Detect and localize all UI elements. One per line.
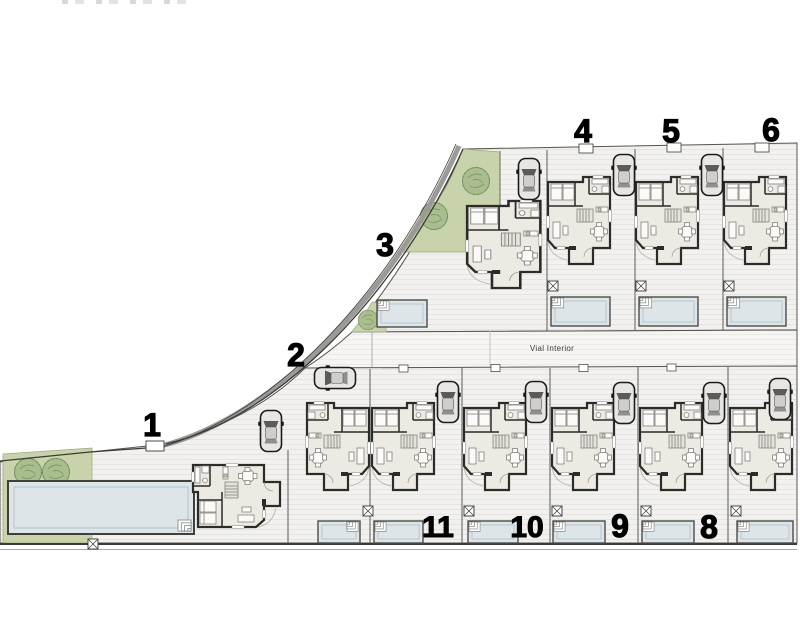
unit-number-label-2: 2 — [287, 337, 305, 373]
car-icon — [701, 383, 727, 424]
gate — [491, 365, 500, 372]
utility-box-icon — [552, 506, 562, 516]
car-icon — [258, 411, 284, 452]
utility-box-icon — [731, 506, 741, 516]
road-name-label: Vial Interior — [530, 344, 574, 353]
utility-box-icon — [548, 281, 558, 291]
unit-number-label-4: 4 — [574, 113, 592, 149]
car-icon — [611, 155, 637, 196]
gate — [667, 364, 676, 371]
pool-villa8 — [642, 521, 694, 543]
utility-box-icon — [464, 506, 474, 516]
car-icon — [699, 155, 725, 196]
pool-villa3 — [377, 300, 427, 327]
utility-box-icon — [363, 506, 373, 516]
unit-number-label-6: 6 — [762, 112, 780, 148]
cropped-edge-text — [62, 0, 190, 4]
car-icon — [767, 379, 793, 420]
pool-villa7-partial — [737, 521, 793, 543]
utility-box-icon — [724, 281, 734, 291]
car-icon — [611, 383, 637, 424]
unit-number-label-10: 10 — [510, 511, 543, 544]
gate — [399, 365, 408, 372]
utility-box-icon — [636, 281, 646, 291]
gate — [579, 365, 588, 372]
tree-icon — [358, 310, 377, 329]
pool-villa5 — [639, 297, 698, 326]
unit-number-label-9: 9 — [611, 508, 629, 544]
car-icon — [315, 365, 356, 391]
pool-villa1 — [8, 481, 194, 534]
pool-villa9 — [553, 521, 605, 543]
car-icon — [523, 382, 549, 423]
utility-box-icon — [641, 506, 651, 516]
unit-number-label-1: 1 — [143, 407, 161, 443]
unit-number-label-11: 11 — [422, 511, 454, 544]
pool-villa2 — [318, 521, 360, 543]
utility-box-icon — [88, 539, 98, 549]
unit-number-label-5: 5 — [662, 113, 680, 149]
car-icon — [516, 159, 542, 200]
pool-villa11 — [374, 521, 423, 543]
pool-villa6 — [727, 297, 786, 326]
pool-villa4 — [551, 297, 610, 326]
unit-number-label-3: 3 — [376, 227, 394, 263]
tree-icon — [463, 168, 490, 195]
car-icon — [435, 382, 461, 423]
unit-number-label-8: 8 — [700, 509, 718, 545]
site-plan: 1 2 3 4 5 6 8 9 10 11 Vial Interior — [0, 0, 800, 640]
